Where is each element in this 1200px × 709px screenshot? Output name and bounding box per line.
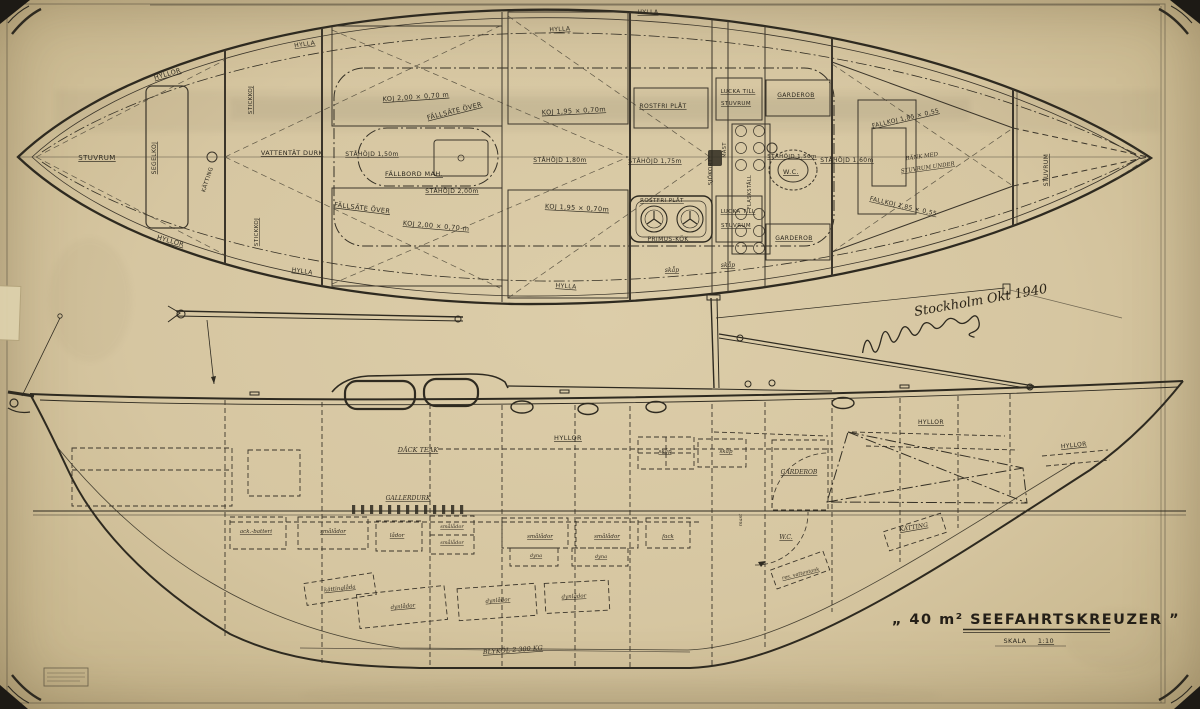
stamp-box <box>44 668 88 686</box>
blueprint-sheet: STUVRUMHYLLORHYLLORSEGELKOJKÄTTINGSTICKK… <box>0 0 1200 709</box>
plan-label: KOJ 2,00 × 0,70 m <box>403 219 470 233</box>
bow-fitting <box>8 392 34 413</box>
plan-label: GARDEROB <box>777 92 815 99</box>
plan-label: STICKKOJ <box>254 218 260 246</box>
plan-label: STUVRUM <box>721 223 751 229</box>
plan-label: STÅHÖJD 1,60m <box>820 157 874 164</box>
plan-label: STUVRUM <box>721 101 751 107</box>
signature-block: Stockholm Okt 1940 <box>860 282 1049 354</box>
profile-label: GARDEROB <box>781 469 818 476</box>
plan-label: HYLLA <box>637 9 659 16</box>
signature-script <box>860 315 981 353</box>
profile-label: smålådor <box>440 539 464 546</box>
plan-label: LUCKA TILL <box>721 209 756 215</box>
drawing-title: „ 40 m² SEEFAHRTSKREUZER ” <box>892 612 1180 628</box>
floor-grating <box>352 505 463 514</box>
portholes <box>511 398 854 415</box>
deck-plan: STUVRUMHYLLORHYLLORSEGELKOJKÄTTINGSTICKK… <box>18 9 1151 304</box>
profile-label: fack <box>661 534 674 540</box>
plan-label: STUVRUM <box>78 154 115 162</box>
profile-label: dynlådor <box>485 596 510 605</box>
profile-label: KÄTTING <box>898 522 929 534</box>
profile-label: mast <box>738 513 744 526</box>
profile-label: DÄCK TEAK <box>397 445 440 454</box>
signature-place-date: Stockholm Okt 1940 <box>913 282 1048 320</box>
profile-label: smålådor <box>594 533 620 540</box>
profile-label: smålådor <box>440 523 464 530</box>
plan-label: STÅHÖJD 1,50m <box>767 153 817 160</box>
profile-label: res. vattentank <box>781 566 820 581</box>
door-arc <box>772 453 828 508</box>
plan-label: skåp <box>721 262 735 269</box>
plan-label: LUCKA TILL <box>721 89 756 95</box>
profile-label: GALLERDURK <box>386 495 431 502</box>
plan-label: STÅHÖJD 1,75m <box>628 158 682 165</box>
plan-label: SJÖKORT <box>707 158 714 185</box>
profile-label: lådor <box>390 532 405 539</box>
plan-label: KOJ 1,95 × 0,70m <box>545 202 610 213</box>
plan-label: STÅHÖJD 1,80m <box>533 157 587 164</box>
plan-label: HYLLA <box>291 267 313 277</box>
plan-label: STÅHÖJD 1,50m <box>345 151 399 158</box>
mast <box>711 298 714 388</box>
boom <box>719 334 1034 386</box>
profile-label: smålådor <box>527 533 553 540</box>
plan-label: SEGELKOJ <box>151 142 158 175</box>
profile-label: HYLLOR <box>554 434 582 442</box>
coachroof <box>332 374 508 392</box>
profile-label: HYLLOR <box>1061 441 1088 451</box>
profile-label: dyna <box>595 554 607 560</box>
profile-label: W.C. <box>779 534 792 541</box>
plan-label: STUVRUM <box>1043 154 1050 187</box>
profile-label: dyna <box>530 553 542 559</box>
plan-label: PRIMUS-KÖK <box>647 236 689 243</box>
scale-label: SKALA <box>1004 637 1027 645</box>
plan-label: ROSTFRI PLÅT <box>639 103 686 110</box>
plan-label: STUVRUM UNDER <box>901 161 956 174</box>
tape-strip <box>0 286 21 341</box>
stove-burners <box>641 206 703 232</box>
plan-label: FÄLLBORD MAH. <box>385 169 443 178</box>
profile-view: DÄCK TEAKHYLLORGALLERDURKack.-batterismå… <box>8 284 1186 668</box>
profile-label: ack.-batteri <box>240 529 272 535</box>
plan-label: GARDEROB <box>775 235 813 242</box>
profile-label: skåp <box>720 448 733 455</box>
furniture-boxes <box>72 432 1110 629</box>
scale-value: 1:10 <box>1038 637 1054 645</box>
profile-label: dynlådor <box>390 602 416 611</box>
profile-label: smålådor <box>320 528 346 535</box>
profile-label: HYLLOR <box>918 419 944 426</box>
profile-label: BLYKÖL 2 300 KG <box>482 643 544 656</box>
profile-label: skåp <box>659 448 672 455</box>
plan-label: W.C. <box>783 168 799 176</box>
plan-label: KÄTTING <box>200 166 215 193</box>
plan-label: STICKKOJ <box>248 86 254 114</box>
plan-label: STÅHÖJD 2,00m <box>425 188 479 195</box>
plan-label: HYLLA <box>555 282 577 290</box>
plan-label: MAST <box>722 142 728 158</box>
plan-label: VATTENTÄT DURK <box>261 148 324 157</box>
plan-label: BÄNK MED <box>904 151 939 163</box>
profile-label: kättinglåda <box>324 583 356 593</box>
plan-label: FLASKSTÄLL <box>746 175 753 209</box>
wc-plan <box>767 143 817 190</box>
plan-label: skåp <box>665 267 679 274</box>
drawing-canvas: STUVRUMHYLLORHYLLORSEGELKOJKÄTTINGSTICKK… <box>0 0 1200 709</box>
profile-label: dynlådor <box>561 592 586 600</box>
plan-label: HYLLA <box>549 25 571 33</box>
plan-label: ROSTFRI PLÅT <box>640 197 684 204</box>
quarter-berth <box>827 432 1027 503</box>
